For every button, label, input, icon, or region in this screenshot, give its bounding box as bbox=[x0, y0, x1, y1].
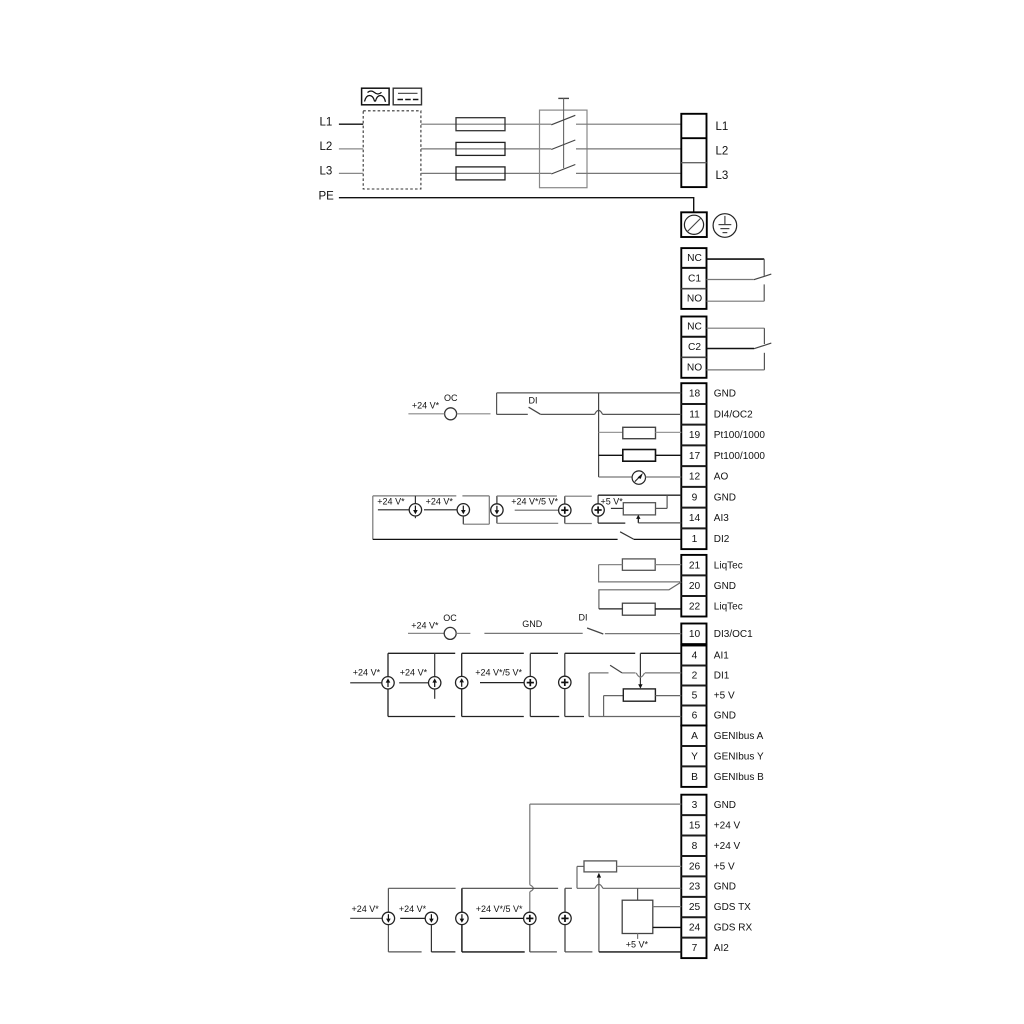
svg-text:OC: OC bbox=[444, 393, 458, 403]
svg-text:+24 V*: +24 V* bbox=[353, 668, 381, 678]
svg-text:LiqTec: LiqTec bbox=[714, 601, 743, 612]
svg-text:NO: NO bbox=[687, 294, 702, 305]
svg-text:21: 21 bbox=[689, 560, 701, 571]
svg-text:GND: GND bbox=[714, 800, 736, 811]
svg-text:L3: L3 bbox=[320, 166, 333, 178]
svg-text:NC: NC bbox=[687, 322, 702, 333]
svg-text:OC: OC bbox=[443, 613, 457, 623]
svg-text:3: 3 bbox=[692, 800, 698, 811]
svg-text:8: 8 bbox=[692, 841, 698, 852]
svg-text:+24 V*: +24 V* bbox=[426, 497, 454, 507]
svg-text:DI4/OC2: DI4/OC2 bbox=[714, 409, 753, 420]
svg-text:GND: GND bbox=[714, 711, 736, 722]
svg-text:5: 5 bbox=[692, 691, 698, 702]
svg-text:+5 V: +5 V bbox=[714, 691, 735, 702]
svg-text:18: 18 bbox=[689, 389, 701, 400]
svg-text:GENIbus B: GENIbus B bbox=[714, 772, 764, 783]
svg-text:L1: L1 bbox=[320, 116, 333, 128]
svg-text:GENIbus A: GENIbus A bbox=[714, 731, 764, 742]
svg-text:+5 V*: +5 V* bbox=[601, 496, 624, 506]
svg-text:+24 V*: +24 V* bbox=[411, 621, 439, 631]
svg-text:4: 4 bbox=[692, 651, 698, 662]
svg-text:17: 17 bbox=[689, 451, 701, 462]
svg-text:L2: L2 bbox=[716, 146, 729, 158]
svg-text:GDS RX: GDS RX bbox=[714, 923, 753, 934]
svg-text:PE: PE bbox=[319, 191, 335, 203]
svg-text:Y: Y bbox=[691, 751, 698, 762]
svg-text:+24 V*/5 V*: +24 V*/5 V* bbox=[475, 668, 522, 678]
svg-text:DI3/OC1: DI3/OC1 bbox=[714, 629, 753, 640]
svg-text:L3: L3 bbox=[716, 170, 729, 182]
svg-text:1: 1 bbox=[692, 534, 698, 545]
svg-text:9: 9 bbox=[692, 492, 698, 503]
svg-text:C1: C1 bbox=[688, 274, 701, 285]
svg-text:10: 10 bbox=[689, 629, 701, 640]
svg-text:DI: DI bbox=[529, 395, 538, 405]
svg-text:Pt100/1000: Pt100/1000 bbox=[714, 430, 766, 441]
svg-text:+5 V*: +5 V* bbox=[626, 940, 649, 950]
svg-text:14: 14 bbox=[689, 513, 701, 524]
svg-text:GND: GND bbox=[714, 492, 736, 503]
svg-text:GDS TX: GDS TX bbox=[714, 902, 751, 913]
svg-text:26: 26 bbox=[689, 861, 701, 872]
svg-text:+24 V: +24 V bbox=[714, 820, 741, 831]
svg-text:+24 V*: +24 V* bbox=[400, 668, 428, 678]
svg-text:+24 V*: +24 V* bbox=[399, 904, 427, 914]
svg-text:+5 V: +5 V bbox=[714, 861, 735, 872]
svg-text:GND: GND bbox=[714, 882, 736, 893]
svg-text:+24 V*: +24 V* bbox=[352, 904, 380, 914]
svg-text:AO: AO bbox=[714, 472, 729, 483]
svg-text:GENIbus Y: GENIbus Y bbox=[714, 751, 764, 762]
svg-text:L2: L2 bbox=[320, 141, 333, 153]
svg-text:AI3: AI3 bbox=[714, 513, 729, 524]
svg-text:15: 15 bbox=[689, 820, 701, 831]
svg-text:+24 V*/5 V*: +24 V*/5 V* bbox=[511, 496, 558, 506]
svg-text:AI1: AI1 bbox=[714, 651, 729, 662]
svg-text:+24 V*: +24 V* bbox=[377, 497, 405, 507]
svg-text:20: 20 bbox=[689, 581, 701, 592]
svg-text:NO: NO bbox=[687, 363, 702, 374]
svg-text:Pt100/1000: Pt100/1000 bbox=[714, 451, 766, 462]
svg-text:GND: GND bbox=[522, 619, 543, 629]
svg-text:A: A bbox=[691, 731, 698, 742]
svg-text:NC: NC bbox=[687, 253, 702, 264]
svg-text:+24 V*/5 V*: +24 V*/5 V* bbox=[476, 904, 523, 914]
svg-text:23: 23 bbox=[689, 882, 701, 893]
svg-text:25: 25 bbox=[689, 902, 701, 913]
svg-text:DI2: DI2 bbox=[714, 534, 730, 545]
svg-text:GND: GND bbox=[714, 389, 736, 400]
svg-text:+24 V*: +24 V* bbox=[412, 401, 440, 411]
svg-text:24: 24 bbox=[689, 923, 701, 934]
svg-text:12: 12 bbox=[689, 472, 701, 483]
svg-text:11: 11 bbox=[689, 409, 700, 420]
svg-text:AI2: AI2 bbox=[714, 943, 729, 954]
svg-text:DI: DI bbox=[579, 613, 588, 623]
svg-text:C2: C2 bbox=[688, 342, 701, 353]
svg-text:19: 19 bbox=[689, 430, 701, 441]
svg-text:GND: GND bbox=[714, 581, 736, 592]
svg-text:DI1: DI1 bbox=[714, 671, 730, 682]
svg-text:B: B bbox=[691, 772, 698, 783]
svg-text:LiqTec: LiqTec bbox=[714, 560, 743, 571]
svg-text:2: 2 bbox=[692, 671, 698, 682]
svg-text:L1: L1 bbox=[716, 121, 729, 133]
svg-text:6: 6 bbox=[692, 711, 698, 722]
svg-text:+24 V: +24 V bbox=[714, 841, 741, 852]
svg-text:7: 7 bbox=[692, 943, 698, 954]
svg-text:22: 22 bbox=[689, 601, 701, 612]
